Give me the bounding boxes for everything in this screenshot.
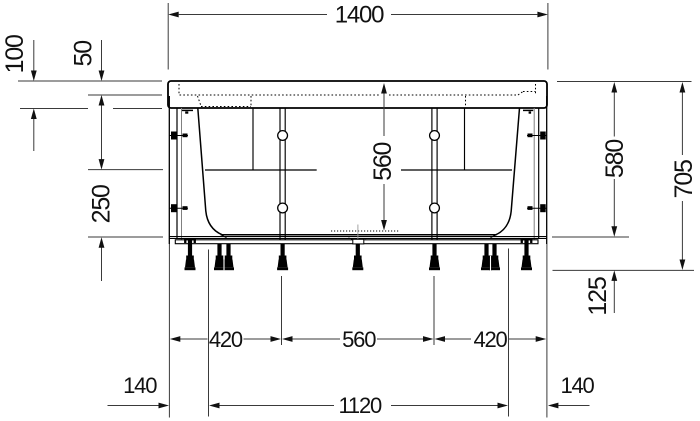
svg-text:250: 250 [87, 185, 115, 223]
svg-text:705: 705 [670, 160, 698, 198]
svg-text:1120: 1120 [339, 393, 382, 418]
svg-text:420: 420 [473, 327, 507, 352]
svg-text:560: 560 [342, 327, 376, 352]
svg-text:140: 140 [560, 373, 594, 398]
svg-text:50: 50 [70, 41, 98, 67]
svg-text:1400: 1400 [335, 2, 384, 29]
svg-text:420: 420 [209, 327, 243, 352]
svg-text:140: 140 [123, 373, 157, 398]
svg-text:580: 580 [601, 140, 629, 178]
svg-text:125: 125 [584, 277, 612, 315]
svg-text:560: 560 [369, 142, 397, 180]
svg-text:100: 100 [1, 35, 29, 73]
